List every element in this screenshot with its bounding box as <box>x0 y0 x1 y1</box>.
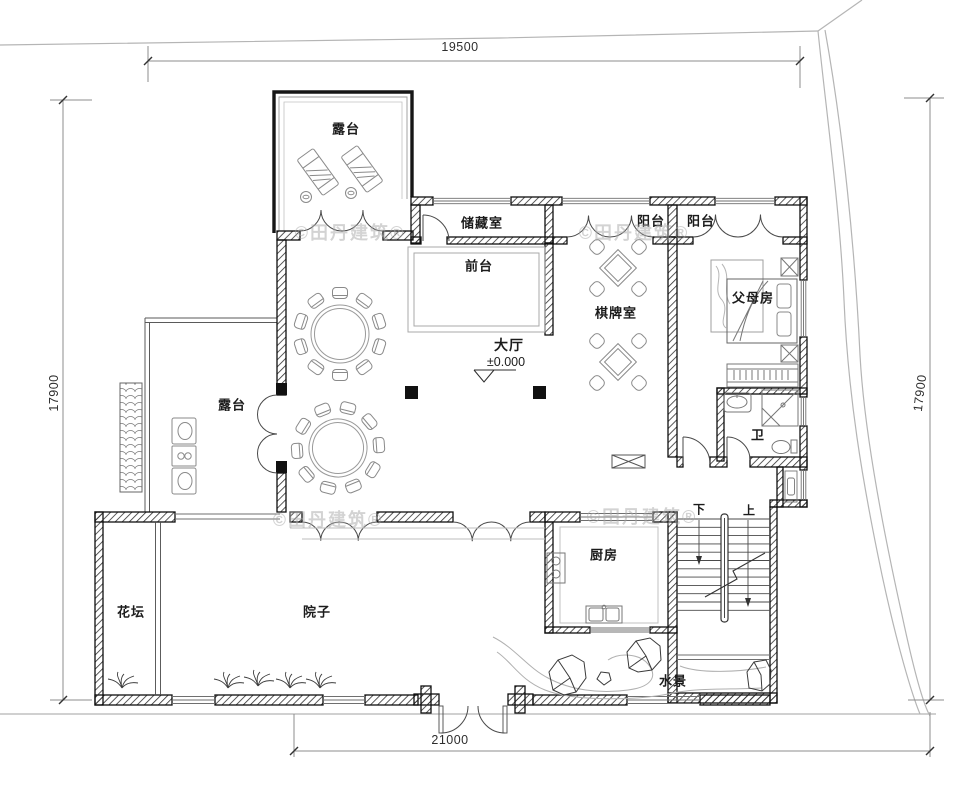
water-heater <box>785 471 797 502</box>
kitchen-fixtures <box>547 527 658 623</box>
bathroom-fixtures <box>724 390 798 454</box>
dim-left: 17900 <box>47 374 61 411</box>
column <box>405 386 418 399</box>
room-label-chess-room: 棋牌室 <box>595 303 637 322</box>
parents-room-furniture <box>711 258 798 387</box>
dimension-lines <box>50 46 944 757</box>
wardrobe <box>727 364 798 387</box>
room-label-hall: 大厅 <box>494 335 524 355</box>
plan-linework <box>0 0 960 800</box>
room-label-water-feature: 水景 <box>659 671 687 690</box>
dim-top: 19500 <box>441 40 478 54</box>
hall-furniture <box>282 238 649 539</box>
room-label-roof-terrace: 露台 <box>332 119 360 138</box>
walls <box>95 197 807 713</box>
room-label-parents-room: 父母房 <box>732 288 774 307</box>
watermark: ©田丹建筑® <box>273 506 384 532</box>
room-label-storage: 储藏室 <box>461 213 503 232</box>
floor-grate <box>612 455 645 468</box>
watermark: ©田丹建筑® <box>587 503 698 529</box>
column <box>533 386 546 399</box>
room-label-flower-bed: 花坛 <box>117 602 145 621</box>
floor-plan-canvas: 露台 储藏室 前台 阳台 阳台 棋牌室 父母房 大厅 ±0.000 露台 卫 厨… <box>0 0 960 800</box>
watermark: ©田丹建筑® <box>579 219 690 245</box>
room-label-kitchen: 厨房 <box>590 545 618 564</box>
dim-bottom: 21000 <box>431 733 468 747</box>
side-terrace <box>120 318 277 512</box>
plants <box>108 670 336 688</box>
room-label-bath: 卫 <box>751 425 765 444</box>
room-label-reception: 前台 <box>465 256 493 275</box>
room-label-side-terrace: 露台 <box>218 395 246 414</box>
level-mark <box>474 370 516 382</box>
room-label-balcony-right: 阳台 <box>687 211 715 230</box>
stair-label-up: 上 <box>743 502 755 519</box>
hall-level-value: ±0.000 <box>487 355 525 369</box>
room-label-courtyard: 院子 <box>303 602 331 621</box>
watermark: ©田丹建筑® <box>295 219 406 245</box>
roof-terrace <box>274 92 412 233</box>
